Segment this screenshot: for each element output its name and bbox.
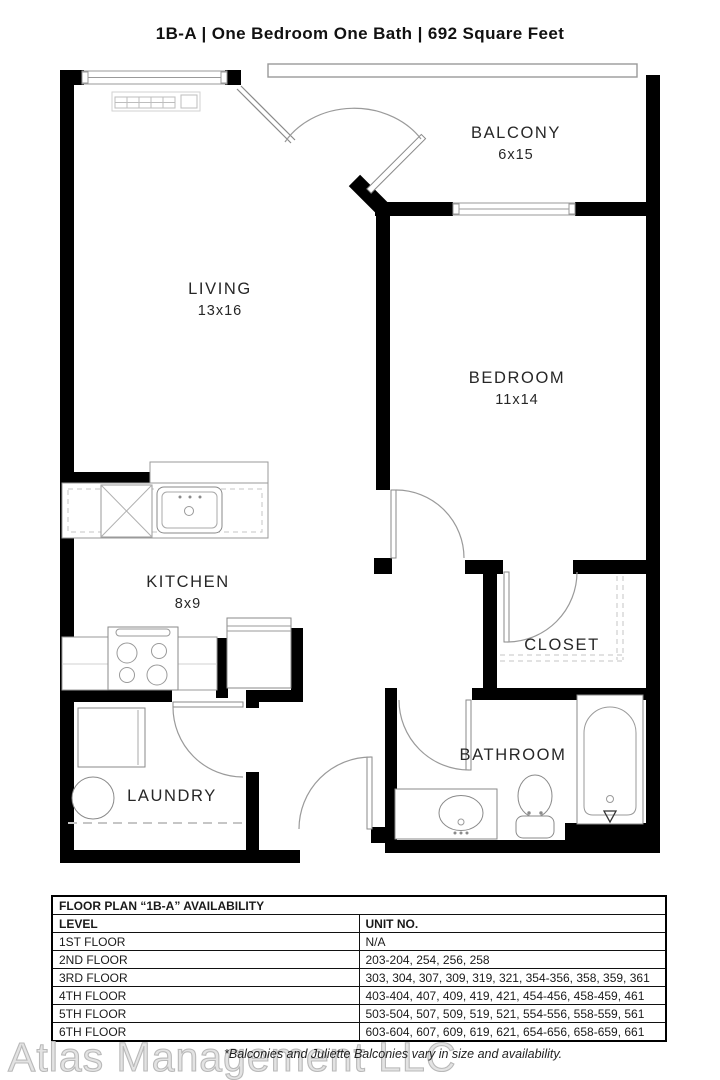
balcony-door-leaf — [367, 134, 426, 193]
table-header-row: LEVEL UNIT NO. — [52, 915, 666, 933]
table-title: FLOOR PLAN “1B-A” AVAILABILITY — [52, 896, 666, 915]
level-cell: 2ND FLOOR — [52, 951, 359, 969]
label-living-dims: 13x16 — [198, 303, 243, 319]
wall-balcony-bedroom-b — [575, 202, 650, 216]
table-row: 5TH FLOOR 503-504, 507, 509, 519, 521, 5… — [52, 1005, 666, 1023]
laundry-door-arc — [173, 707, 243, 777]
floor-plan-page: 1B-A | One Bedroom One Bath | 692 Square… — [0, 0, 720, 1080]
col-header-unit-no: UNIT NO. — [359, 915, 666, 933]
availability-table: FLOOR PLAN “1B-A” AVAILABILITY LEVEL UNI… — [51, 895, 667, 1042]
refrigerator — [227, 618, 291, 688]
closet-door-leaf — [504, 572, 509, 642]
entry-door-leaf — [367, 757, 372, 829]
label-bedroom: BEDROOM — [469, 369, 565, 387]
diagonal-wall-line — [241, 86, 295, 140]
units-cell: 503-504, 507, 509, 519, 521, 554-556, 55… — [359, 1005, 666, 1023]
kitchen-sink — [157, 487, 222, 533]
wall-closet-top — [573, 560, 650, 574]
level-cell: 4TH FLOOR — [52, 987, 359, 1005]
label-laundry: LAUNDRY — [127, 787, 217, 805]
balcony-door-arc — [285, 108, 421, 142]
dryer — [72, 777, 114, 819]
wall-tub-block — [565, 823, 660, 853]
wall-top-a — [60, 70, 84, 85]
floor-plan-drawing: BALCONY 6x15 LIVING 13x16 BEDROOM 11x14 … — [0, 0, 720, 880]
stove — [108, 627, 178, 690]
table-row: 4TH FLOOR 403-404, 407, 409, 419, 421, 4… — [52, 987, 666, 1005]
label-kitchen-dims: 8x9 — [175, 596, 201, 612]
table-row: 2ND FLOOR 203-204, 254, 256, 258 — [52, 951, 666, 969]
wall-left — [60, 70, 74, 863]
wall-right — [646, 75, 660, 853]
units-cell: 303, 304, 307, 309, 319, 321, 354-356, 3… — [359, 969, 666, 987]
wall-laundry-stub — [246, 690, 259, 708]
wall-bedroom-left — [376, 214, 390, 490]
toilet — [516, 775, 554, 838]
label-bathroom: BATHROOM — [460, 746, 567, 764]
table-row: 1ST FLOOR N/A — [52, 933, 666, 951]
closet-door-arc — [507, 572, 577, 642]
wall-laundry-right — [246, 772, 259, 863]
wall-bedroom-foot — [374, 558, 392, 574]
label-kitchen: KITCHEN — [146, 573, 230, 591]
table-row: 3RD FLOOR 303, 304, 307, 309, 319, 321, … — [52, 969, 666, 987]
wall-kitchen-mid — [216, 638, 228, 698]
level-cell: 5TH FLOOR — [52, 1005, 359, 1023]
wall-kitchen-bottom-a — [60, 690, 172, 702]
washer — [78, 708, 145, 767]
wall-bathroom-bottom — [385, 840, 570, 853]
entry-door-arc — [299, 757, 371, 829]
bedroom-door-leaf — [391, 490, 396, 558]
wall-vestibule — [483, 560, 497, 693]
balcony-railing — [268, 64, 637, 77]
table-title-row: FLOOR PLAN “1B-A” AVAILABILITY — [52, 896, 666, 915]
bedroom-door-arc — [396, 490, 464, 558]
label-bedroom-dims: 11x14 — [495, 392, 538, 408]
units-cell: 203-204, 254, 256, 258 — [359, 951, 666, 969]
window-bedroom — [453, 203, 575, 215]
diagonal-wall-line — [237, 89, 291, 143]
level-cell: 3RD FLOOR — [52, 969, 359, 987]
balcony-disclaimer: *Balconies and Juliette Balconies vary i… — [224, 1047, 562, 1061]
wall-laundry-bottom — [60, 850, 300, 863]
heater — [112, 92, 200, 111]
balcony-door — [237, 86, 426, 193]
laundry-door-leaf — [173, 702, 243, 707]
dishwasher — [101, 485, 152, 537]
label-balcony-dims: 6x15 — [498, 147, 533, 163]
bathtub — [577, 695, 643, 824]
wall-kitchen-right — [291, 628, 303, 702]
level-cell: 1ST FLOOR — [52, 933, 359, 951]
bathroom-door-arc — [399, 700, 469, 770]
window-living — [82, 71, 227, 84]
label-living: LIVING — [188, 280, 252, 298]
col-header-level: LEVEL — [52, 915, 359, 933]
label-closet: CLOSET — [524, 636, 600, 654]
units-cell: 403-404, 407, 409, 419, 421, 454-456, 45… — [359, 987, 666, 1005]
units-cell: N/A — [359, 933, 666, 951]
wall-kitchen-stub — [60, 472, 150, 484]
wall-balcony-hinge — [349, 175, 391, 217]
bathroom-vanity — [395, 789, 497, 839]
label-balcony: BALCONY — [471, 124, 561, 142]
